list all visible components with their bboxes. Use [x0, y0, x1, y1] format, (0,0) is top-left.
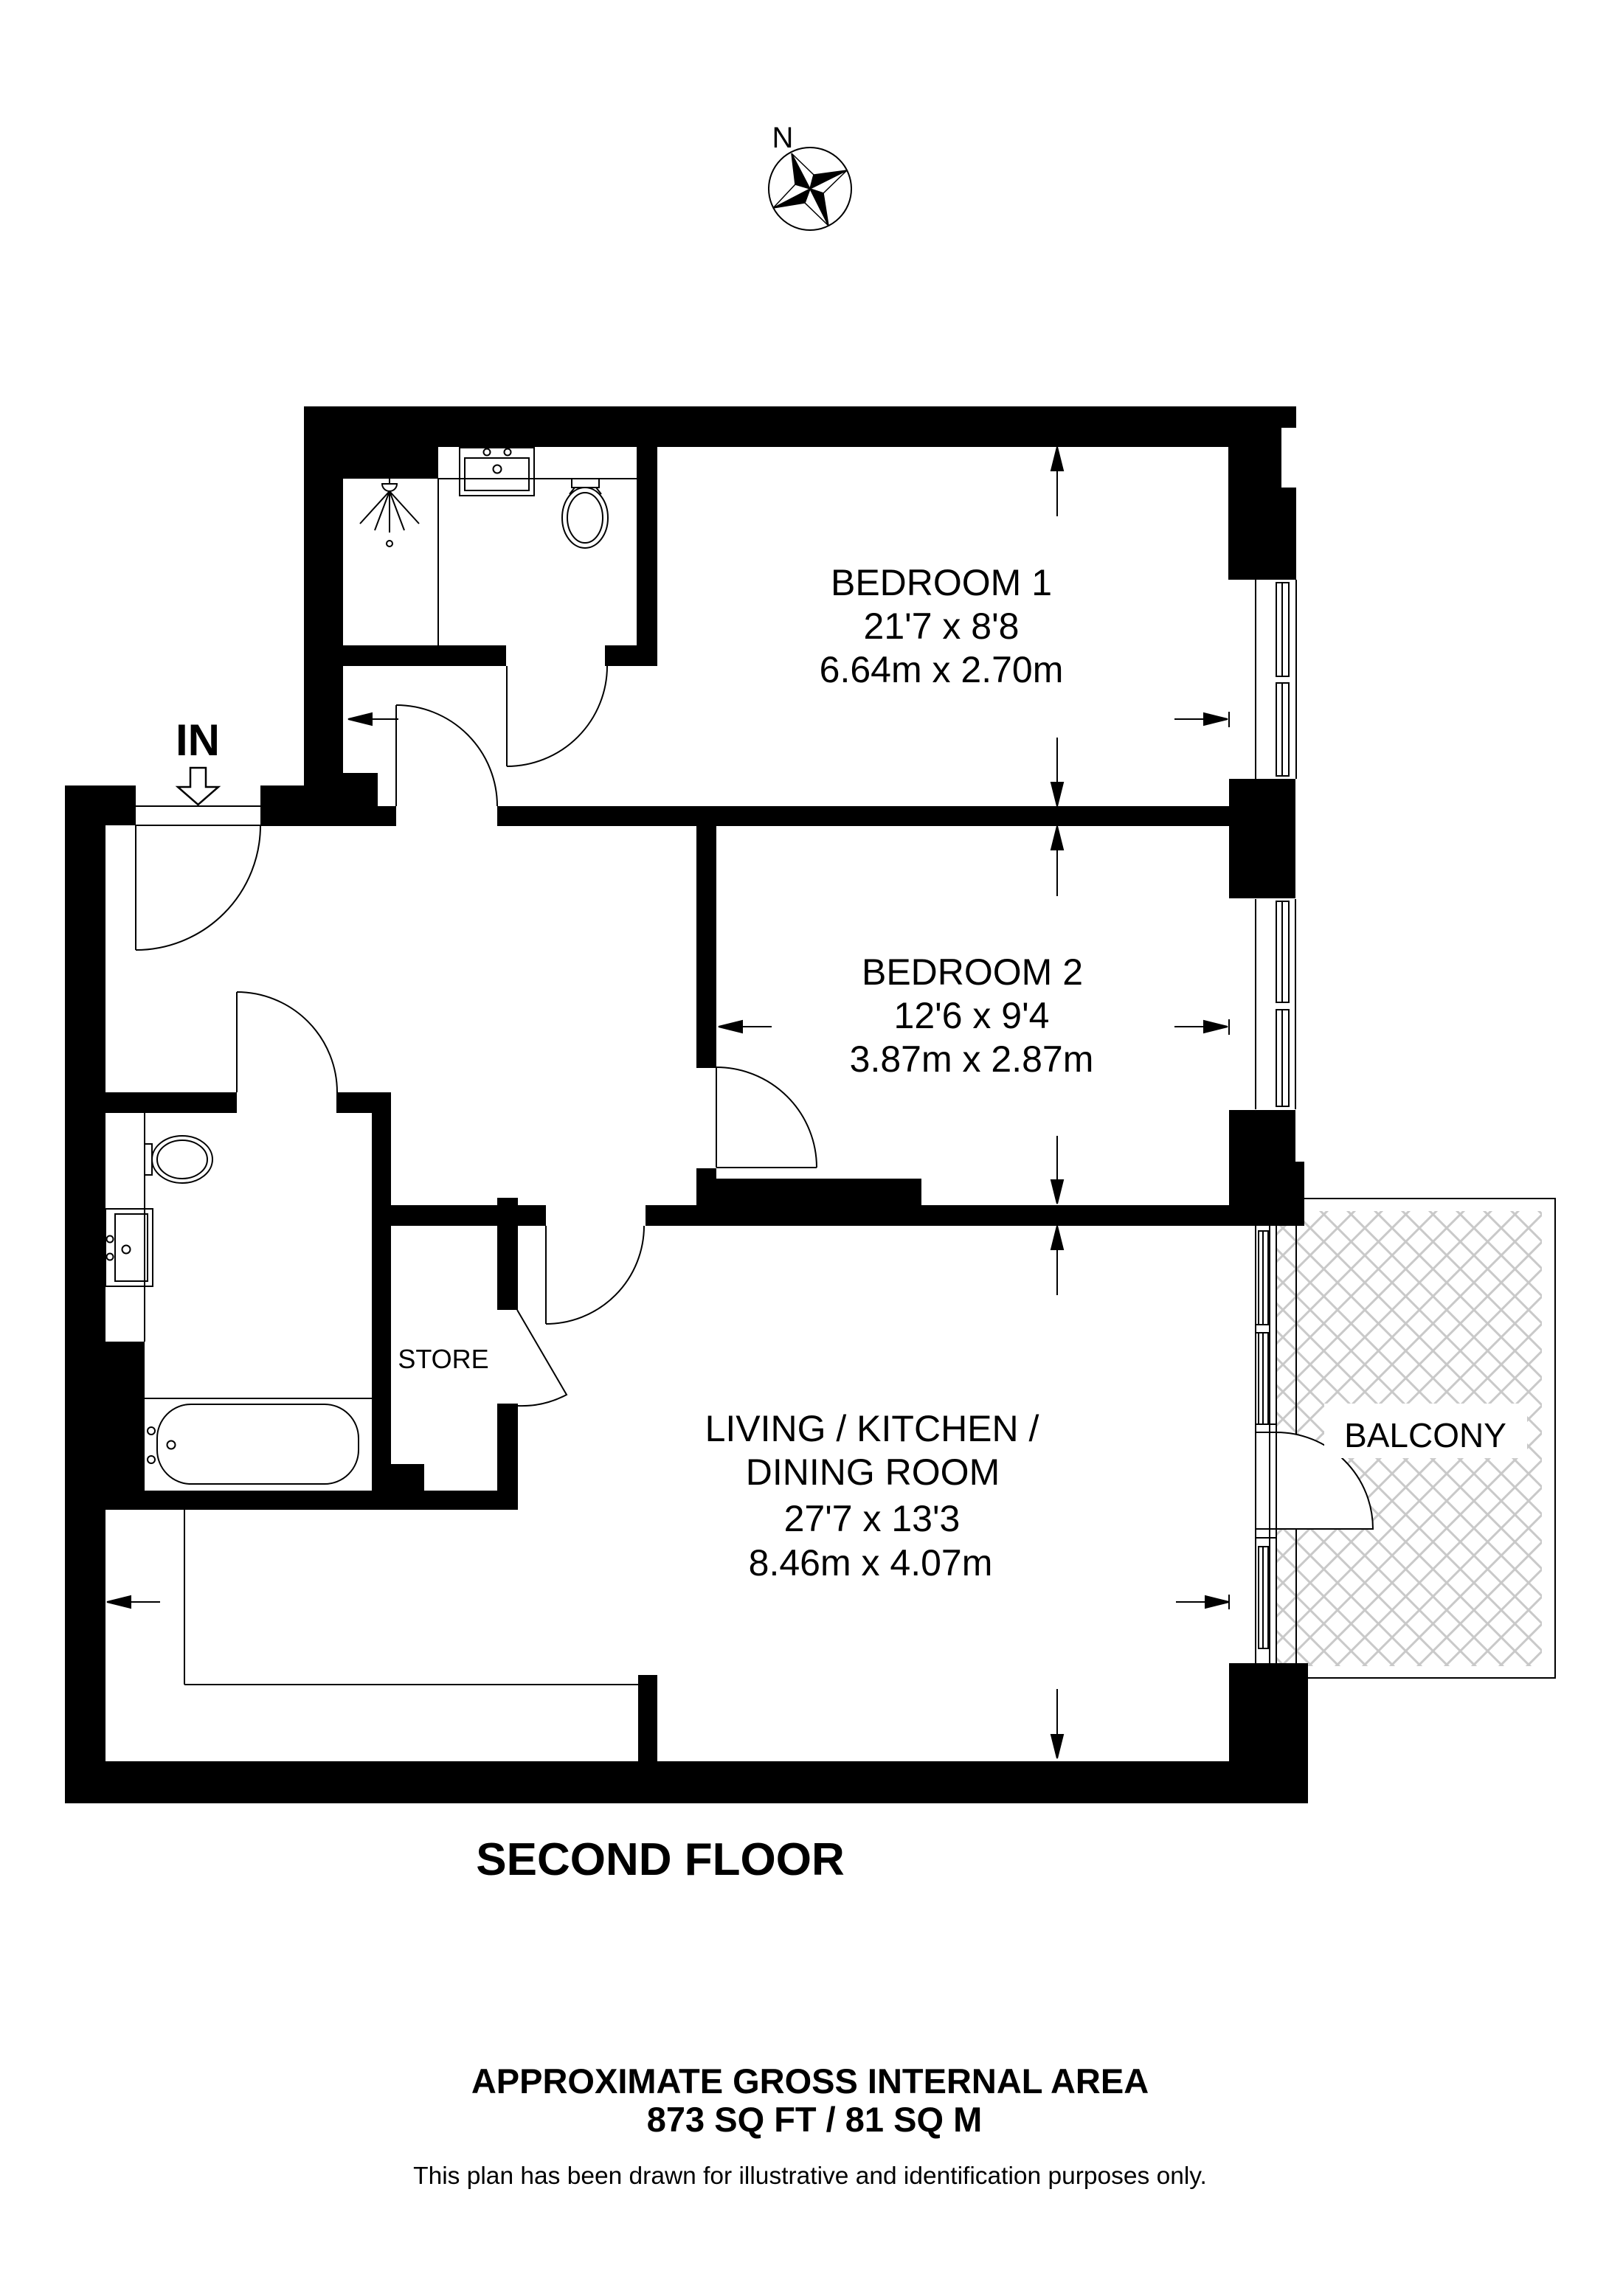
svg-text:8.46m x 4.07m: 8.46m x 4.07m [749, 1542, 993, 1584]
svg-text:SECOND FLOOR: SECOND FLOOR [476, 1834, 844, 1885]
svg-text:3.87m x 2.87m: 3.87m x 2.87m [850, 1038, 1094, 1080]
svg-text:BEDROOM 1: BEDROOM 1 [831, 562, 1052, 603]
svg-text:This plan has been drawn for i: This plan has been drawn for illustrativ… [413, 2163, 1207, 2190]
svg-text:27'7 x 13'3: 27'7 x 13'3 [784, 1498, 961, 1539]
svg-text:21'7 x 8'8: 21'7 x 8'8 [864, 606, 1020, 647]
svg-text:N: N [772, 122, 794, 154]
svg-text:BEDROOM 2: BEDROOM 2 [862, 951, 1083, 993]
svg-text:BALCONY: BALCONY [1344, 1416, 1506, 1454]
svg-text:DINING ROOM: DINING ROOM [746, 1452, 1000, 1493]
svg-text:LIVING / KITCHEN /: LIVING / KITCHEN / [705, 1408, 1039, 1449]
svg-text:6.64m x 2.70m: 6.64m x 2.70m [820, 649, 1064, 690]
svg-text:12'6 x 9'4: 12'6 x 9'4 [894, 995, 1050, 1036]
svg-text:873 SQ FT / 81 SQ M: 873 SQ FT / 81 SQ M [647, 2100, 983, 2139]
svg-text:IN: IN [176, 715, 220, 765]
svg-text:STORE: STORE [398, 1344, 488, 1374]
svg-text:APPROXIMATE GROSS INTERNAL ARE: APPROXIMATE GROSS INTERNAL AREA [471, 2061, 1149, 2101]
